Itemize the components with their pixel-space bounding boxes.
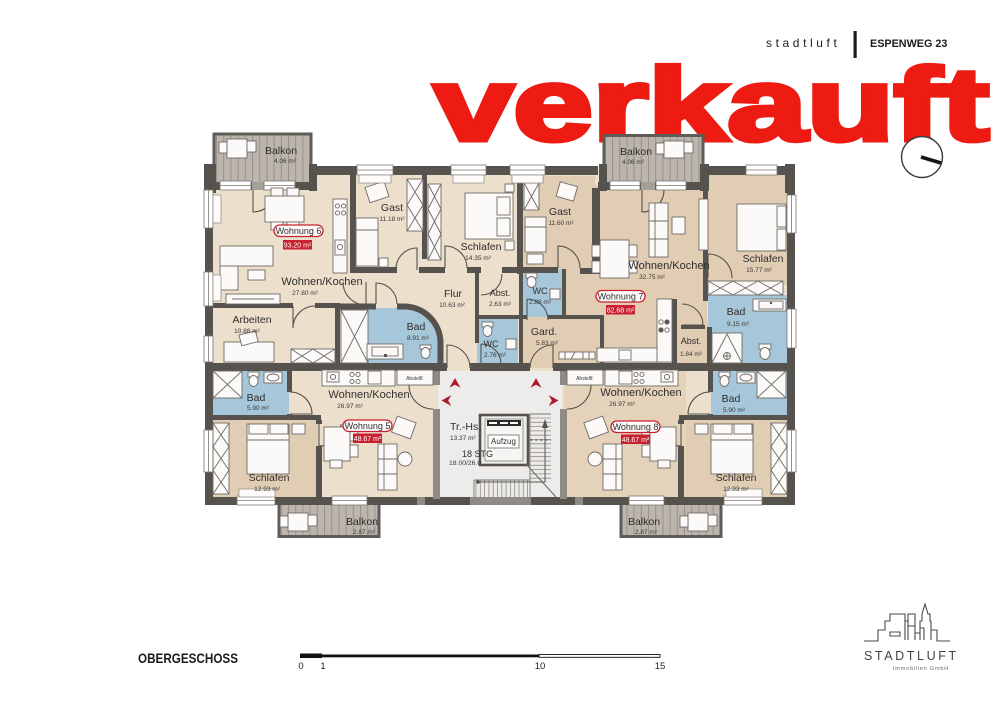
- svg-text:Schlafen: Schlafen: [461, 241, 502, 253]
- svg-text:11.18 m²: 11.18 m²: [379, 216, 405, 223]
- svg-text:5.90 m²: 5.90 m²: [723, 407, 746, 414]
- svg-text:8.91 m²: 8.91 m²: [407, 335, 430, 342]
- svg-text:Abst.: Abst.: [490, 288, 511, 298]
- svg-text:93.20 m²: 93.20 m²: [284, 243, 312, 250]
- svg-text:2.87 m²: 2.87 m²: [635, 529, 658, 536]
- svg-text:Wohnen/Kochen: Wohnen/Kochen: [628, 260, 709, 272]
- svg-text:Schlafen: Schlafen: [716, 472, 757, 484]
- svg-text:Balkon: Balkon: [346, 516, 378, 528]
- svg-text:Wohnen/Kochen: Wohnen/Kochen: [281, 276, 362, 288]
- svg-text:13.37 m²: 13.37 m²: [450, 435, 476, 442]
- svg-text:82.68 m²: 82.68 m²: [607, 308, 635, 315]
- svg-text:26.97 m²: 26.97 m²: [609, 401, 635, 408]
- svg-text:27.80 m²: 27.80 m²: [292, 290, 318, 297]
- svg-text:2.88 m²: 2.88 m²: [529, 299, 552, 306]
- svg-text:2.76 m²: 2.76 m²: [484, 352, 507, 359]
- svg-text:Immobilien GmbH: Immobilien GmbH: [893, 666, 949, 672]
- svg-text:48.67 m²: 48.67 m²: [354, 436, 382, 443]
- svg-text:Balkon: Balkon: [265, 145, 297, 157]
- svg-text:9.15 m²: 9.15 m²: [727, 321, 750, 328]
- svg-text:4.06 m²: 4.06 m²: [274, 158, 297, 165]
- svg-text:Wohnung 7: Wohnung 7: [598, 292, 644, 302]
- svg-text:Balkon: Balkon: [628, 516, 660, 528]
- svg-text:15: 15: [655, 661, 666, 672]
- svg-text:Bad: Bad: [727, 306, 746, 318]
- svg-text:WC: WC: [484, 339, 499, 349]
- svg-text:Wohnen/Kochen: Wohnen/Kochen: [600, 387, 681, 399]
- svg-text:Wohnen/Kochen: Wohnen/Kochen: [328, 389, 409, 401]
- svg-text:15.77 m²: 15.77 m²: [746, 267, 772, 274]
- svg-text:Aufzug: Aufzug: [491, 437, 516, 446]
- svg-text:STADTLUFT: STADTLUFT: [864, 649, 959, 663]
- svg-text:Bad: Bad: [247, 392, 266, 404]
- svg-text:Abstellf.: Abstellf.: [406, 376, 424, 382]
- svg-text:Bad: Bad: [407, 321, 426, 333]
- svg-text:Tr.-Hs.: Tr.-Hs.: [450, 421, 481, 433]
- svg-text:5.83 m²: 5.83 m²: [536, 340, 559, 347]
- svg-text:Gard.: Gard.: [531, 326, 557, 338]
- svg-text:Wohnung 6: Wohnung 6: [276, 226, 322, 236]
- svg-text:14.35 m²: 14.35 m²: [465, 255, 491, 262]
- svg-text:1.84 m²: 1.84 m²: [680, 351, 703, 358]
- svg-text:Schlafen: Schlafen: [743, 253, 784, 265]
- svg-text:18.00/26.0: 18.00/26.0: [449, 460, 481, 467]
- svg-text:Schlafen: Schlafen: [249, 472, 290, 484]
- svg-text:10: 10: [535, 661, 546, 672]
- svg-text:Arbeiten: Arbeiten: [232, 314, 271, 326]
- svg-text:OBERGESCHOSS: OBERGESCHOSS: [138, 650, 238, 666]
- svg-text:1: 1: [320, 661, 325, 672]
- svg-text:5.90 m²: 5.90 m²: [247, 405, 270, 412]
- svg-text:12.93 m²: 12.93 m²: [254, 486, 280, 493]
- svg-text:Abstellf.: Abstellf.: [576, 376, 594, 382]
- svg-text:Balkon: Balkon: [620, 146, 652, 158]
- svg-text:18 STG: 18 STG: [462, 449, 493, 459]
- svg-text:Wohnung 5: Wohnung 5: [345, 421, 391, 431]
- svg-text:Gast: Gast: [549, 206, 571, 218]
- svg-text:4.06 m²: 4.06 m²: [622, 159, 645, 166]
- svg-text:10.63 m²: 10.63 m²: [439, 302, 465, 309]
- svg-text:2.87 m²: 2.87 m²: [353, 529, 376, 536]
- svg-text:WC: WC: [533, 286, 548, 296]
- svg-text:11.60 m²: 11.60 m²: [548, 220, 574, 227]
- svg-text:Flur: Flur: [444, 288, 463, 300]
- svg-text:26.97 m²: 26.97 m²: [337, 403, 363, 410]
- svg-text:48.67 m²: 48.67 m²: [622, 437, 650, 444]
- svg-text:2.63 m²: 2.63 m²: [489, 301, 512, 308]
- svg-text:12.93 m²: 12.93 m²: [723, 486, 749, 493]
- svg-text:Bad: Bad: [722, 393, 741, 405]
- svg-text:32.75 m²: 32.75 m²: [639, 274, 665, 281]
- svg-text:Abst.: Abst.: [681, 336, 702, 346]
- svg-text:10.88 m²: 10.88 m²: [234, 328, 260, 335]
- svg-text:0: 0: [298, 661, 303, 672]
- svg-text:Wohnung 8: Wohnung 8: [613, 422, 659, 432]
- svg-text:Gast: Gast: [381, 202, 403, 214]
